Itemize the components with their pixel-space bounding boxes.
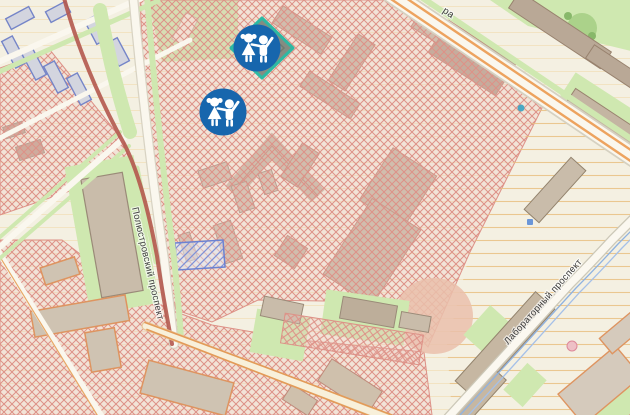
marker-circle[interactable] xyxy=(200,89,247,136)
kindergarten-marker-2[interactable] xyxy=(200,89,247,136)
marker-circle[interactable] xyxy=(234,25,281,72)
kindergarten-marker-1[interactable] xyxy=(234,25,281,72)
building xyxy=(85,328,121,373)
tree xyxy=(564,12,572,20)
poi-dot[interactable] xyxy=(527,219,533,225)
map-canvas[interactable]: Полюстровский проспект Лабораторный прос… xyxy=(0,0,630,415)
blue-hatch-plot[interactable] xyxy=(175,240,225,270)
poi-dot[interactable] xyxy=(518,105,525,112)
map-viewport[interactable]: Полюстровский проспект Лабораторный прос… xyxy=(0,0,630,415)
poi-area xyxy=(567,341,577,351)
